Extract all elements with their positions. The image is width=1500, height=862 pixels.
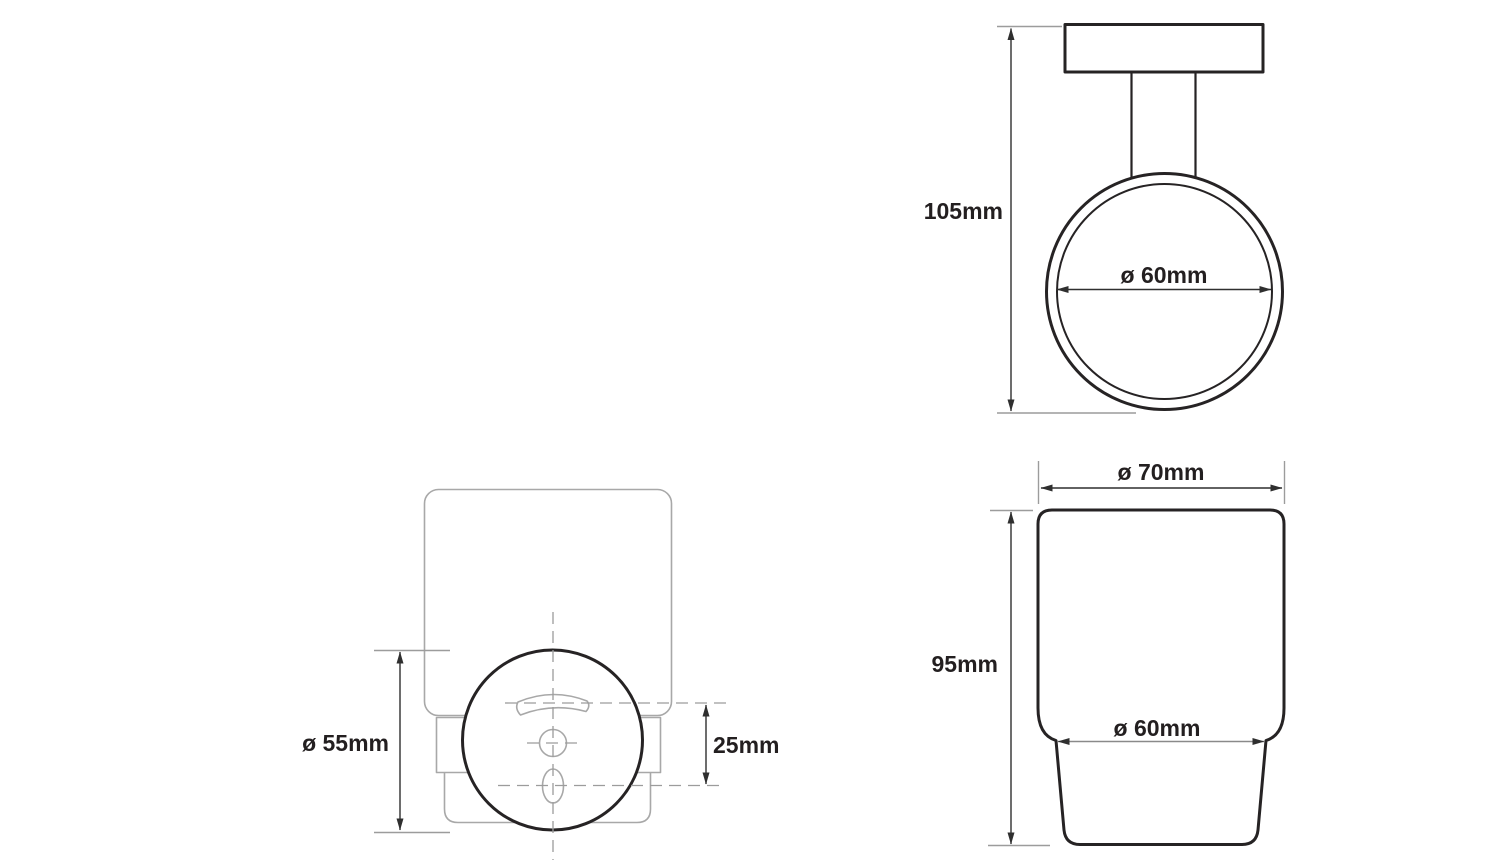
holder-ring-outer-circle [1047, 174, 1283, 410]
drawing-canvas: ø 60mm 105mm ø 70mm ø 60mm 95mm [0, 0, 1500, 862]
view-mount-rear: ø 55mm 25mm [302, 490, 779, 861]
view-cup-front: ø 70mm ø 60mm 95mm [932, 459, 1285, 846]
technical-drawing: ø 60mm 105mm ø 70mm ø 60mm 95mm [0, 0, 1500, 862]
dim-label-cup-height: 95mm [932, 651, 998, 677]
wall-plate-outline [1065, 25, 1263, 73]
view-holder-front: ø 60mm 105mm [924, 25, 1283, 414]
dim-label-ring-inner-diameter: ø 60mm [1121, 262, 1208, 288]
dim-label-cup-rim-diameter: ø 70mm [1118, 459, 1205, 485]
dim-label-hole-spacing: 25mm [713, 732, 779, 758]
dim-label-cup-body-diameter: ø 60mm [1114, 715, 1201, 741]
dim-label-holder-height: 105mm [924, 198, 1003, 224]
dim-label-plate-diameter: ø 55mm [302, 730, 389, 756]
cup-outline [1038, 510, 1284, 845]
